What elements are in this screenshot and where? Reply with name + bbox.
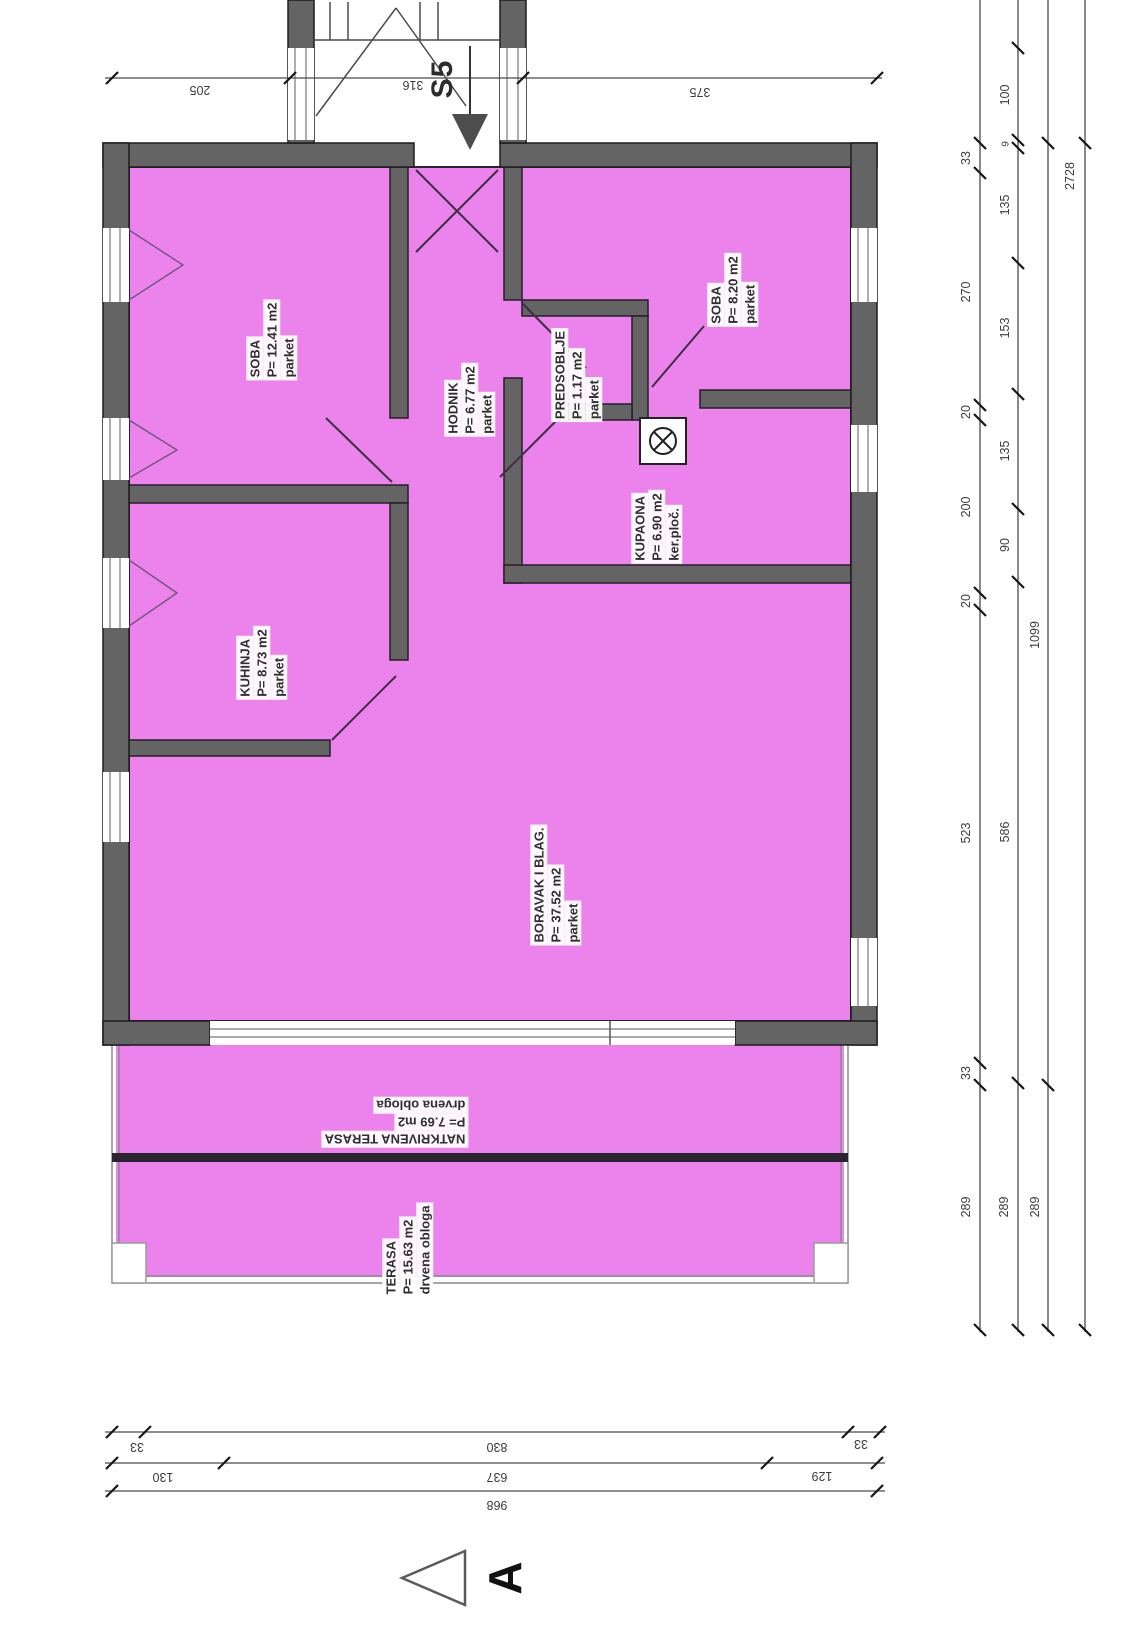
dim-bottom1-0: 33 (130, 1440, 144, 1454)
room-area: P= 6.77 m2 (461, 363, 478, 437)
s5-arrowhead-icon (452, 114, 488, 150)
section-a-triangle-icon (402, 1551, 465, 1605)
dim-right2-3: 153 (998, 318, 1012, 339)
room-floor: parket (281, 335, 298, 380)
terrace-pillar-left (112, 1243, 146, 1283)
dim-right2-1: 9 (1001, 141, 1012, 147)
room-name: HODNIK (444, 380, 461, 437)
floor-areas (116, 167, 851, 1277)
room-floor: parket (586, 377, 603, 422)
room-name: KUHINJA (236, 636, 253, 700)
room-label-soba1: SOBA P= 12.41 m2 parket (246, 300, 297, 381)
dim-right2-7: 289 (997, 1197, 1011, 1218)
room-floor: ker.ploč. (666, 505, 683, 564)
dim-right3-1: 289 (1028, 1197, 1042, 1218)
dim-bottom2-0: 130 (153, 1470, 174, 1484)
terrace-divider (112, 1153, 848, 1162)
dim-right1-3: 200 (959, 497, 973, 518)
room-label-hodnik: HODNIK P= 6.77 m2 parket (444, 363, 495, 437)
room-name: BORAVAK I BLAG. (530, 824, 547, 945)
equipment-symbol (640, 418, 686, 464)
window-left-4 (103, 772, 129, 842)
floor-plan-drawing (0, 0, 1125, 1631)
room-floor: parket (271, 655, 288, 700)
room-label-kuhinja: KUHINJA P= 8.73 m2 parket (236, 626, 287, 700)
dim-right4-0: 2728 (1063, 162, 1077, 190)
dim-top-2: 375 (690, 85, 711, 99)
room-name: PREDSOBLJE (551, 328, 568, 422)
dim-bottom3-0: 968 (487, 1498, 508, 1512)
dim-right2-5: 90 (998, 538, 1012, 552)
stair-windows (288, 48, 526, 140)
dim-right1-1: 270 (959, 282, 973, 303)
dim-bottom2-2: 129 (812, 1469, 833, 1483)
dim-right1-5: 523 (959, 823, 973, 844)
room-name: KUPAONA (631, 493, 648, 564)
terrace-glass-door (210, 1021, 735, 1045)
room-label-terasa: TERASA P= 15.63 m2 drvena obloga (382, 1203, 433, 1298)
room-area: P= 6.90 m2 (648, 490, 665, 564)
dim-bottom1-1: 830 (487, 1440, 508, 1454)
room-name: TERASA (382, 1238, 399, 1297)
room-name: NATKRIVENA TERASA (322, 1131, 469, 1148)
room-area: P= 7.69 m2 (395, 1113, 469, 1130)
window-left-1 (103, 228, 129, 302)
dim-bottom2-1: 637 (487, 1470, 508, 1484)
section-label-s5: S5 (426, 60, 460, 99)
window-left-3 (103, 558, 129, 628)
room-area: P= 8.20 m2 (724, 253, 741, 327)
room-name: SOBA (246, 337, 263, 381)
dim-right1-0: 33 (959, 151, 973, 165)
room-name: SOBA (707, 283, 724, 327)
dim-right1-2: 20 (959, 405, 973, 419)
dim-right1-7: 289 (959, 1197, 973, 1218)
room-area: P= 37.52 m2 (547, 865, 564, 946)
window-left-2 (103, 418, 129, 480)
dim-right1-6: 33 (959, 1066, 973, 1080)
dim-right1-4: 20 (959, 594, 973, 608)
room-area: P= 8.73 m2 (253, 626, 270, 700)
room-label-predsoblje: PREDSOBLJE P= 1.17 m2 parket (551, 328, 602, 422)
dim-right2-6: 586 (998, 822, 1012, 843)
room-floor: drvena obloga (374, 1096, 469, 1113)
window-right-1 (851, 228, 877, 302)
room-area: P= 12.41 m2 (263, 300, 280, 381)
terrace-pillar-right (814, 1243, 848, 1283)
room-label-kupaona: KUPAONA P= 6.90 m2 ker.ploč. (631, 490, 682, 564)
section-label-a: A (478, 1561, 532, 1594)
room-floor: parket (479, 392, 496, 437)
room-label-natkrivena-terasa: NATKRIVENA TERASA P= 7.69 m2 drvena oblo… (322, 1096, 469, 1147)
room-area: P= 15.63 m2 (399, 1217, 416, 1298)
stairwell (288, 0, 526, 143)
window-right-3 (851, 938, 877, 1006)
dim-top-0: 205 (190, 83, 211, 97)
dim-bottom1-2: 33 (854, 1437, 868, 1451)
room-floor: drvena obloga (417, 1203, 434, 1298)
dim-right3-0: 1099 (1028, 621, 1042, 649)
room-label-soba2: SOBA P= 8.20 m2 parket (707, 253, 758, 327)
dim-right2-4: 135 (998, 441, 1012, 462)
room-label-boravak: BORAVAK I BLAG. P= 37.52 m2 parket (530, 824, 581, 945)
dim-right2-0: 100 (998, 85, 1012, 106)
room-floor: parket (565, 901, 582, 946)
dim-right2-2: 135 (998, 195, 1012, 216)
room-area: P= 1.17 m2 (568, 348, 585, 422)
stair-treads (314, 2, 500, 116)
room-floor: parket (742, 282, 759, 327)
window-right-2 (851, 425, 877, 492)
dim-top-1: 316 (403, 78, 424, 92)
